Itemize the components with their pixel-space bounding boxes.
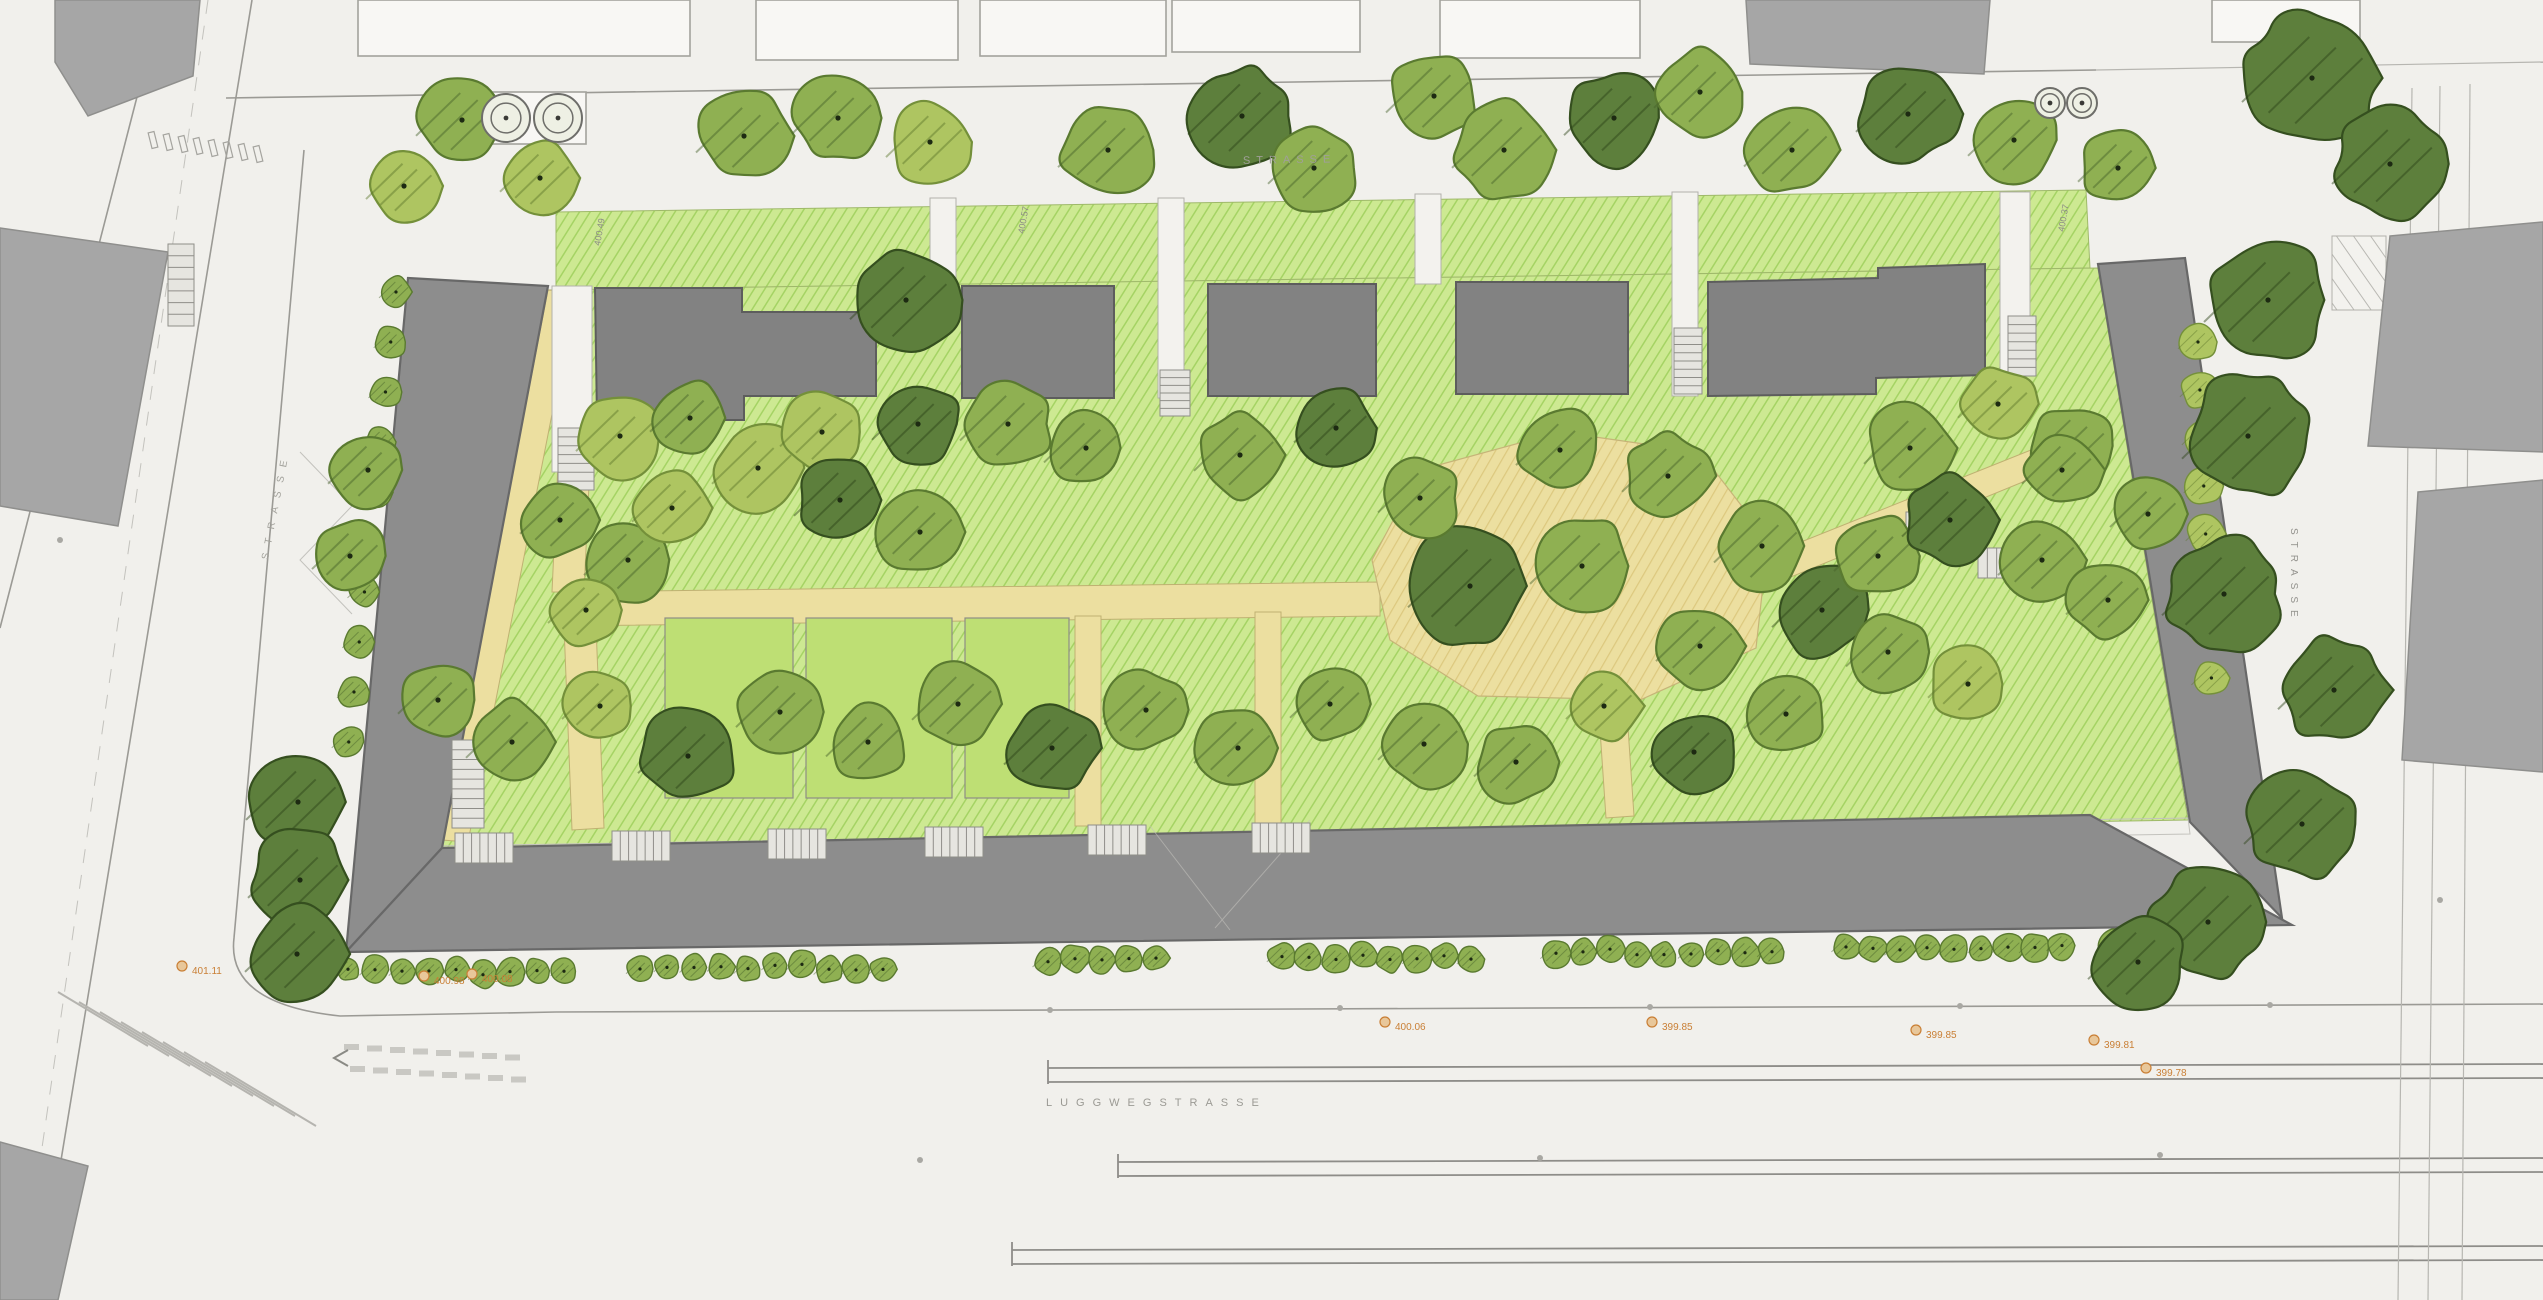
- north-gap-walk: [1415, 194, 1441, 284]
- shrub: [654, 955, 679, 978]
- shrub: [1114, 946, 1142, 972]
- context-building: [2368, 222, 2543, 452]
- tree: [886, 101, 972, 184]
- shrub: [814, 955, 842, 982]
- tree: [312, 520, 386, 590]
- top-wing-4: [1456, 282, 1628, 394]
- shrub: [1294, 943, 1321, 970]
- tree-grate-icon: [2067, 88, 2097, 118]
- shrub: [1033, 947, 1061, 975]
- stairs: [612, 831, 670, 861]
- shrub: [551, 958, 576, 983]
- shrub: [1087, 946, 1116, 974]
- stairs: [925, 827, 983, 857]
- shrub: [1914, 935, 1941, 960]
- context-building-outline: [756, 0, 958, 60]
- shrub: [2019, 934, 2048, 962]
- stairs: [168, 244, 194, 326]
- top-wing-3: [1208, 284, 1376, 396]
- street-name-label: STRASSE: [2288, 528, 2299, 624]
- tree-grate-icon: [534, 94, 582, 142]
- tram-rail: [1048, 1078, 2543, 1082]
- tree: [500, 141, 580, 216]
- site-plan-stage: 401.11400.98400.08400.06399.85399.85399.…: [0, 0, 2543, 1300]
- shrub: [1376, 947, 1403, 974]
- shrub: [1402, 946, 1432, 973]
- spot-elevation: 399.81: [2089, 1035, 2135, 1051]
- shrub: [1143, 946, 1171, 970]
- tree: [1386, 56, 1475, 138]
- tree: [2088, 916, 2183, 1010]
- shrub: [1321, 945, 1350, 973]
- shrub: [1568, 938, 1597, 965]
- street-name-label: LUGGWEGSTRASSE: [1046, 1097, 1267, 1109]
- context-building-outline: [358, 0, 690, 56]
- tram-rail: [1048, 1064, 2543, 1068]
- svg-text:401.11: 401.11: [192, 966, 222, 977]
- shrub: [1348, 941, 1377, 966]
- shrub: [869, 958, 898, 981]
- context-building-outline: [1440, 0, 1640, 58]
- shrub: [374, 326, 406, 358]
- shrub: [1650, 942, 1676, 967]
- shrub: [332, 727, 364, 757]
- context-building: [55, 0, 200, 116]
- shrub: [369, 377, 402, 406]
- svg-text:400.08: 400.08: [482, 974, 513, 985]
- svg-text:399.85: 399.85: [1662, 1022, 1693, 1033]
- tree: [1654, 47, 1742, 138]
- tree: [245, 903, 350, 1002]
- tram-rail: [1118, 1158, 2543, 1162]
- tree-grate-icon: [2035, 88, 2065, 118]
- shrub: [389, 959, 416, 984]
- stairs: [1088, 825, 1146, 855]
- landscape-site-plan-drawing: 401.11400.98400.08400.06399.85399.85399.…: [0, 0, 2543, 1300]
- stairs: [455, 833, 513, 863]
- shrub: [1060, 945, 1091, 973]
- stairs: [2008, 316, 2036, 376]
- shrub: [761, 953, 787, 978]
- left-street-curb-east: [38, 0, 252, 1300]
- svg-text:400.06: 400.06: [1395, 1022, 1426, 1033]
- tram-rail: [1012, 1260, 2543, 1264]
- shrub: [734, 956, 760, 981]
- context-building: [0, 1142, 88, 1300]
- shrub: [841, 955, 870, 983]
- tree: [792, 76, 882, 158]
- shrub: [1678, 943, 1704, 967]
- shrub: [1457, 946, 1485, 972]
- parking-stripes-bottom-left: [58, 992, 316, 1126]
- shrub: [626, 956, 653, 982]
- shrub: [2047, 934, 2075, 961]
- stairs: [768, 829, 826, 859]
- stairs: [1160, 370, 1190, 416]
- tree: [1058, 107, 1154, 193]
- shrub: [523, 958, 549, 983]
- context-building: [1746, 0, 1990, 74]
- spot-elevation: 399.85: [1911, 1025, 1957, 1041]
- direction-arrow: [334, 1050, 348, 1066]
- crosswalk-dashes: [344, 1044, 526, 1083]
- shrub: [1267, 943, 1295, 969]
- stairs: [1252, 823, 1310, 853]
- tree: [2278, 635, 2394, 737]
- tree: [1564, 73, 1659, 169]
- tree: [2204, 242, 2324, 359]
- svg-text:399.81: 399.81: [2104, 1040, 2135, 1051]
- tram-rail: [1012, 1246, 2543, 1250]
- shrub: [1430, 943, 1458, 968]
- shrub: [360, 955, 389, 983]
- north-gap-walk: [1158, 198, 1184, 398]
- shrub: [786, 950, 816, 977]
- spot-elevation: 401.11: [177, 961, 222, 977]
- context-building-outline: [1172, 0, 1360, 52]
- tree: [696, 91, 794, 176]
- stairs: [1674, 328, 1702, 394]
- tree: [1856, 69, 1963, 164]
- top-wing-5: [1708, 264, 1985, 396]
- shrub: [1992, 934, 2024, 962]
- tree-grate-icon: [482, 94, 530, 142]
- tree: [1744, 108, 1841, 192]
- spot-elevation: 400.06: [1380, 1017, 1426, 1033]
- shrub: [1624, 942, 1651, 967]
- shrub: [680, 953, 707, 980]
- tree: [2078, 130, 2156, 199]
- shrub: [1703, 939, 1730, 965]
- shrub: [1831, 934, 1861, 959]
- top-wing-2: [962, 286, 1114, 398]
- svg-text:400.98: 400.98: [434, 976, 465, 987]
- shrub: [1540, 941, 1571, 969]
- shrub: [1968, 936, 1993, 961]
- tram-rail: [1118, 1172, 2543, 1176]
- context-building: [0, 228, 168, 526]
- shrub: [1757, 938, 1784, 964]
- shrub: [337, 677, 369, 707]
- street-name-label: STRASSE: [1243, 153, 1337, 167]
- left-street-centerline: [20, 0, 208, 1300]
- context-building: [2402, 480, 2543, 772]
- bus-stop-ticks: [148, 132, 263, 163]
- shrub: [1729, 937, 1761, 966]
- shrub: [1595, 935, 1625, 962]
- shrub: [1939, 935, 1967, 962]
- svg-text:399.85: 399.85: [1926, 1030, 1957, 1041]
- svg-text:399.78: 399.78: [2156, 1068, 2187, 1079]
- tree: [1928, 645, 2002, 718]
- parking-bays-top-right: [2332, 236, 2386, 310]
- tree: [366, 151, 443, 223]
- spot-elevation: 399.85: [1647, 1017, 1693, 1033]
- context-building-outline: [980, 0, 1166, 56]
- shrub: [1858, 937, 1888, 962]
- bottom-street-curb: [556, 1004, 2543, 1012]
- shrub: [707, 954, 736, 979]
- shrub: [1884, 936, 1916, 962]
- tree: [2332, 105, 2449, 221]
- rail-end-caps: [1012, 1060, 1118, 1266]
- shrub: [342, 626, 374, 659]
